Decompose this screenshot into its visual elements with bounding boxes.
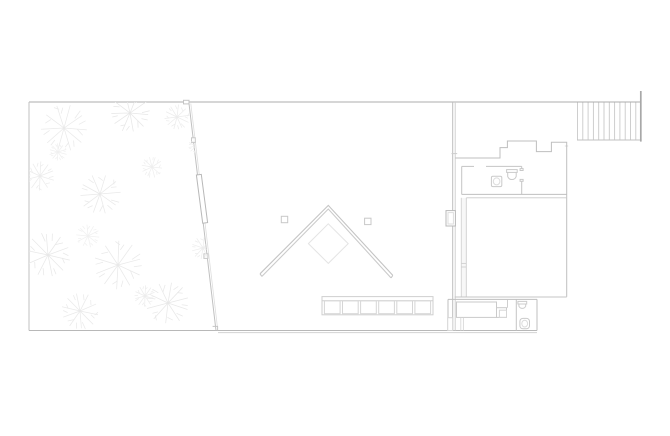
bathroom-rect <box>520 169 523 171</box>
corridor-shaft <box>461 198 466 297</box>
page-background <box>0 0 670 436</box>
site-outline-rect <box>184 100 190 104</box>
corridor-shaft-rect <box>461 198 466 297</box>
bench-row-rect <box>322 297 433 315</box>
lower-rooms-rect <box>448 318 453 331</box>
plan-paper <box>0 0 670 436</box>
floor-plan <box>0 0 670 436</box>
bench-row <box>322 297 433 315</box>
bathroom-rect <box>520 179 523 181</box>
